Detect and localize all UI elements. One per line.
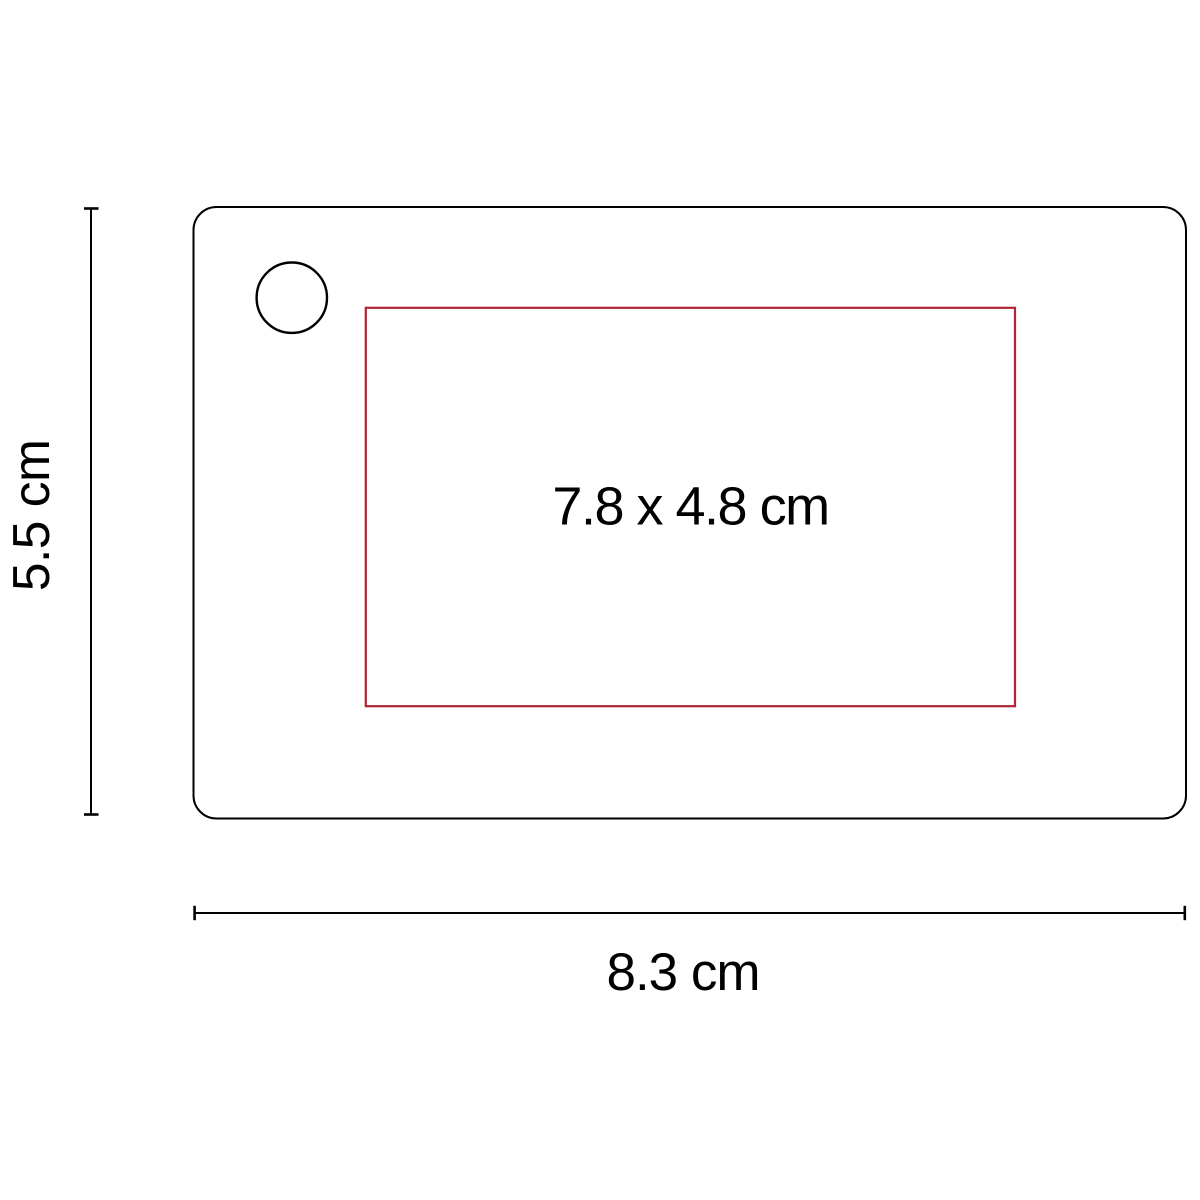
- svg-text:8.3 cm: 8.3 cm: [606, 943, 759, 1002]
- svg-text:7.8 x 4.8 cm: 7.8 x 4.8 cm: [552, 477, 828, 537]
- svg-text:5.5 cm: 5.5 cm: [2, 440, 60, 592]
